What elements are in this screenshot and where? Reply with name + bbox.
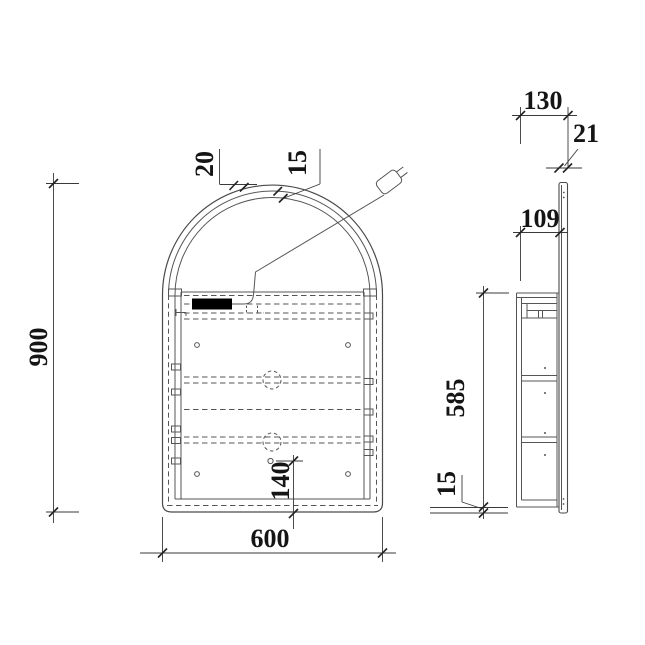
- dimension-linework: [46, 107, 582, 562]
- dim-frame-thickness: 20: [192, 151, 218, 177]
- dim-front-overall-height: 900: [26, 328, 52, 367]
- dim-bottom-lip: 15: [434, 471, 460, 497]
- dimension-ticks: [49, 111, 573, 558]
- dim-cabinet-height: 585: [443, 379, 469, 418]
- shelf-pin-holes: [195, 343, 351, 477]
- dim-side-overall-depth: 130: [524, 88, 563, 114]
- led-driver-block: [192, 299, 232, 310]
- dim-front-overall-width: 600: [251, 526, 290, 552]
- side-cabinet-box: [517, 293, 560, 507]
- dim-bottom-hole-offset: 140: [268, 462, 294, 501]
- technical-drawing-canvas: 900 600 20 15 140 130 21 109 585 15: [0, 0, 645, 645]
- dim-mirror-thickness: 21: [573, 121, 599, 147]
- power-cord-line: [232, 195, 384, 304]
- dim-mirror-recess: 15: [285, 150, 311, 176]
- dim-cabinet-depth: 109: [521, 206, 560, 232]
- power-plug-icon: [375, 163, 410, 195]
- front-view-drawing: [163, 163, 411, 512]
